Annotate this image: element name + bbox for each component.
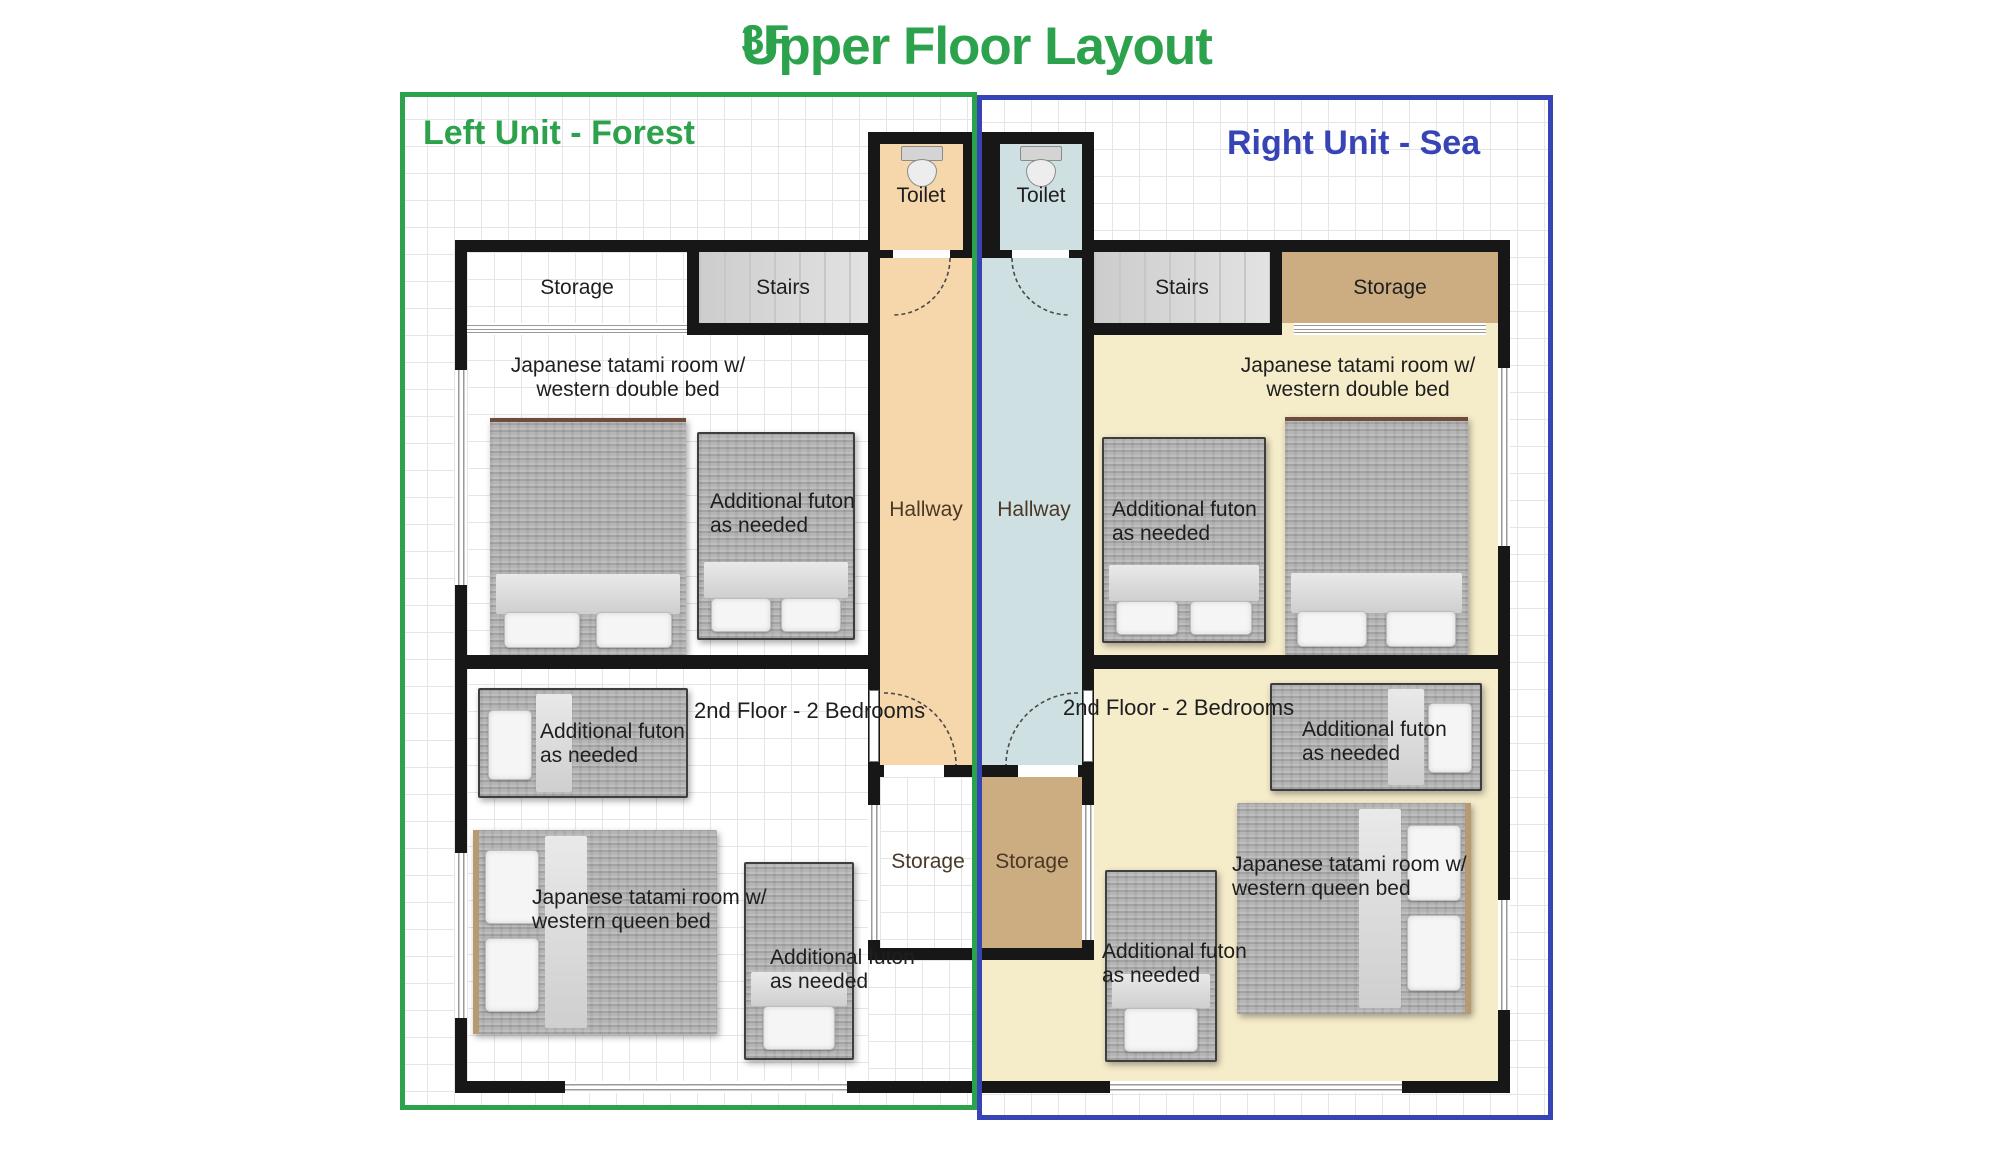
room-label-storage-right-top: Storage [1353, 276, 1427, 300]
door-opening [1018, 765, 1078, 777]
wall [455, 655, 880, 669]
label-futon-right-top: Additional futon as needed [1112, 498, 1257, 546]
label-second-floor-right: 2nd Floor - 2 Bedrooms [1063, 696, 1294, 720]
room-label-hallway-right: Hallway [997, 498, 1071, 522]
wall [687, 323, 880, 335]
wall [1082, 323, 1282, 335]
door-opening [893, 250, 950, 258]
window [565, 1081, 847, 1093]
bed-queen-right [1237, 803, 1471, 1014]
room-label-tatami-double-right: Japanese tatami room w/ western double b… [1241, 354, 1476, 402]
room-label-storage-center-right: Storage [995, 850, 1069, 874]
page-title-text: Upper Floor Layout [741, 17, 1212, 76]
room-label-toilet-right: Toilet [1016, 184, 1065, 208]
floor-number: 3F [741, 16, 788, 64]
window [455, 370, 467, 585]
room-label-tatami-queen-left: Japanese tatami room w/ western queen be… [532, 886, 767, 934]
label-futon-right-bottom: Additional futon as needed [1102, 940, 1247, 988]
label-futon-right-middle: Additional futon as needed [1302, 718, 1447, 766]
wall [455, 240, 880, 252]
label-second-floor-left: 2nd Floor - 2 Bedrooms [694, 699, 925, 723]
page-title: 3FUpper Floor Layout [400, 16, 1553, 77]
room-label-tatami-queen-right: Japanese tatami room w/ western queen be… [1232, 853, 1467, 901]
window [1498, 368, 1510, 546]
sliding-door [868, 805, 880, 940]
sliding-door [1294, 323, 1486, 335]
window [1110, 1081, 1402, 1093]
door-opening [884, 765, 944, 777]
room-label-toilet-left: Toilet [896, 184, 945, 208]
room-label-storage-center-left: Storage [891, 850, 965, 874]
label-futon-left-bottom: Additional futon as needed [770, 946, 915, 994]
wall [963, 132, 1000, 258]
wall [1082, 240, 1510, 252]
door-opening [1012, 250, 1069, 258]
sliding-door [1082, 805, 1094, 940]
floor-plan: 3FUpper Floor Layout [0, 0, 2000, 1156]
room-label-tatami-double-left: Japanese tatami room w/ western double b… [511, 354, 746, 402]
window [455, 853, 467, 1018]
label-futon-left-top: Additional futon as needed [710, 490, 855, 538]
center-right-lower-floor [977, 960, 1094, 1081]
window [1498, 900, 1510, 1010]
bed-double-right [1285, 417, 1468, 655]
room-label-stairs-right: Stairs [1155, 276, 1209, 300]
left-unit-label: Left Unit - Forest [423, 114, 695, 153]
wall [687, 240, 699, 335]
sliding-door [467, 323, 687, 335]
room-label-storage-left-top: Storage [540, 276, 614, 300]
room-label-hallway-left: Hallway [889, 498, 963, 522]
right-unit-label: Right Unit - Sea [1227, 124, 1480, 163]
room-label-stairs-left: Stairs [756, 276, 810, 300]
wall [1270, 240, 1282, 335]
bed-double-left [490, 418, 686, 656]
wall [1082, 655, 1510, 669]
label-futon-left-middle: Additional futon as needed [540, 720, 685, 768]
